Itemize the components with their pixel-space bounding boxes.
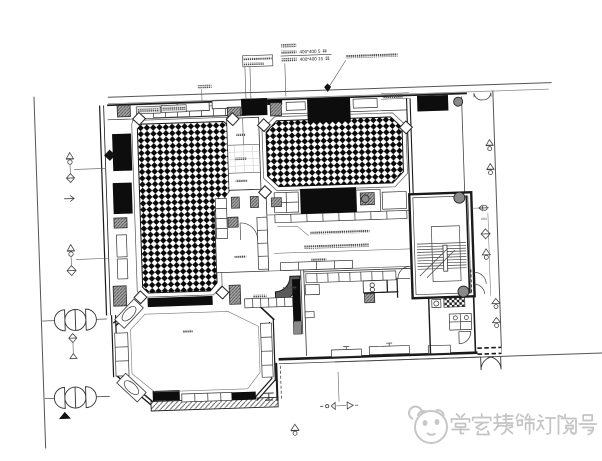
svg-text:400*400 5: 400*400 5 xyxy=(299,49,321,55)
svg-text:400*400 15: 400*400 15 xyxy=(300,56,324,62)
svg-text:A04: A04 xyxy=(481,217,487,221)
